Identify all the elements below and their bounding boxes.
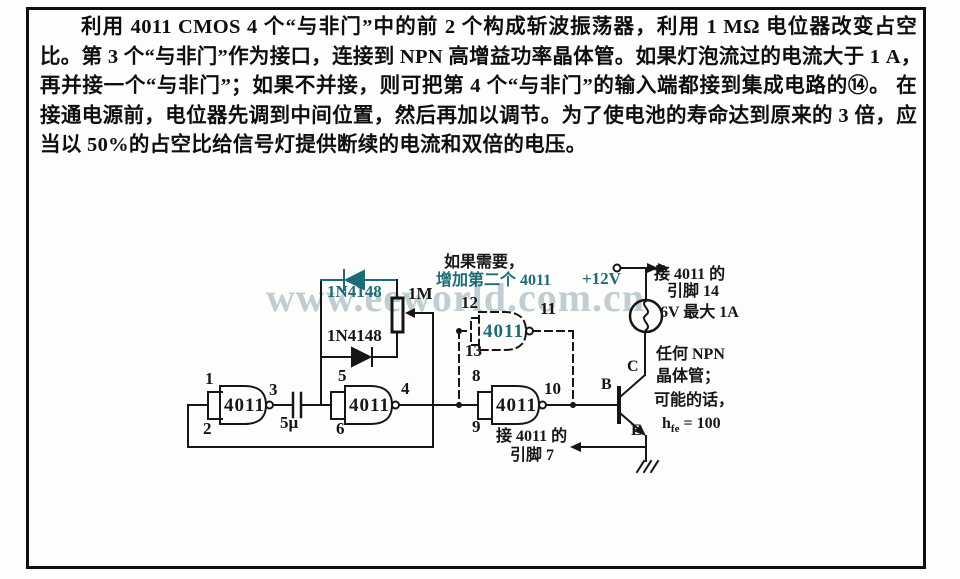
gate4-output-bubble	[526, 328, 533, 335]
emitter-label: E	[631, 423, 642, 439]
gate3-label: 4011	[496, 396, 537, 415]
diode-bottom-label: 1N4148	[327, 327, 382, 344]
scanned-page: 利用 4011 CMOS 4 个“与非门”中的前 2 个构成斩波振荡器，利用 1…	[0, 0, 960, 579]
pin-label-1: 1	[205, 370, 214, 387]
lamp-rating-label: 6V 最大 1A	[660, 305, 739, 321]
pin-label-4: 4	[401, 380, 410, 397]
gate2-label: 4011	[349, 396, 390, 415]
gate4-label: 4011	[483, 322, 524, 341]
pin14-note-line2: 引脚 14	[667, 284, 719, 300]
pin7-arrow	[570, 442, 646, 452]
junction-dot	[456, 402, 462, 408]
potentiometer-label: 1M	[408, 285, 433, 302]
junction-dot	[456, 328, 462, 334]
hfe-symbol: h	[662, 415, 671, 432]
ground-icon	[637, 461, 658, 472]
paragraph-line: 利用 4011 CMOS 4 个“与非门”中的前 2 个构成斩波振荡器，利用 1…	[40, 13, 917, 43]
pin-label-13: 13	[465, 342, 482, 359]
npn-transistor-icon	[619, 332, 646, 461]
diode-bottom-icon	[321, 348, 397, 366]
npn-note-line2: 晶体管；	[656, 369, 720, 385]
potentiometer-icon	[392, 298, 433, 332]
junction-dot	[570, 402, 576, 408]
paragraph-line: 当以 50%的占空比给信号灯提供断续的电流和双倍的电压。	[40, 131, 917, 161]
pin-label-12: 12	[461, 294, 478, 311]
gate1-label: 4011	[224, 396, 265, 415]
optional-note-line2: 增加第二个 4011	[436, 273, 551, 289]
hfe-note: hfe = 100	[662, 416, 721, 435]
description-paragraph: 利用 4011 CMOS 4 个“与非门”中的前 2 个构成斩波振荡器，利用 1…	[40, 13, 917, 161]
pin14-note-line1: 接 4011 的	[654, 267, 725, 283]
pin7-note-line2: 引脚 7	[510, 448, 554, 464]
paragraph-line: 比。第 3 个“与非门”作为接口，连接到 NPN 高增益功率晶体管。如果灯泡流过…	[40, 43, 917, 73]
npn-note-line1: 任何 NPN	[656, 347, 725, 363]
capacitor-label: 5μ	[280, 414, 298, 431]
pin-label-2: 2	[203, 420, 212, 437]
pin-label-8: 8	[472, 367, 481, 384]
base-label: B	[601, 377, 612, 393]
hfe-value: = 100	[679, 415, 720, 432]
pin-label-3: 3	[269, 381, 278, 398]
pin-label-5: 5	[338, 367, 347, 384]
diode-top-label: 1N4148	[327, 283, 382, 300]
paragraph-line: 再并接一个“与非门”；如果不并接，则可把第 4 个“与非门”的输入端都接到集成电…	[40, 72, 917, 102]
pin7-note-line1: 接 4011 的	[496, 429, 567, 445]
paragraph-line: 接通电源前，电位器先调到中间位置，然后再加以调节。为了使电池的寿命达到原来的 3…	[40, 102, 917, 132]
pin-label-9: 9	[472, 418, 481, 435]
pin-label-11: 11	[540, 300, 556, 317]
collector-label: C	[627, 359, 639, 375]
lamp-icon	[630, 300, 662, 332]
npn-note-line3: 可能的话，	[654, 393, 734, 409]
pin-label-10: 10	[544, 380, 561, 397]
pin-label-6: 6	[336, 420, 345, 437]
supply-label: +12V	[582, 270, 621, 287]
optional-note-line1: 如果需要，	[444, 255, 524, 271]
